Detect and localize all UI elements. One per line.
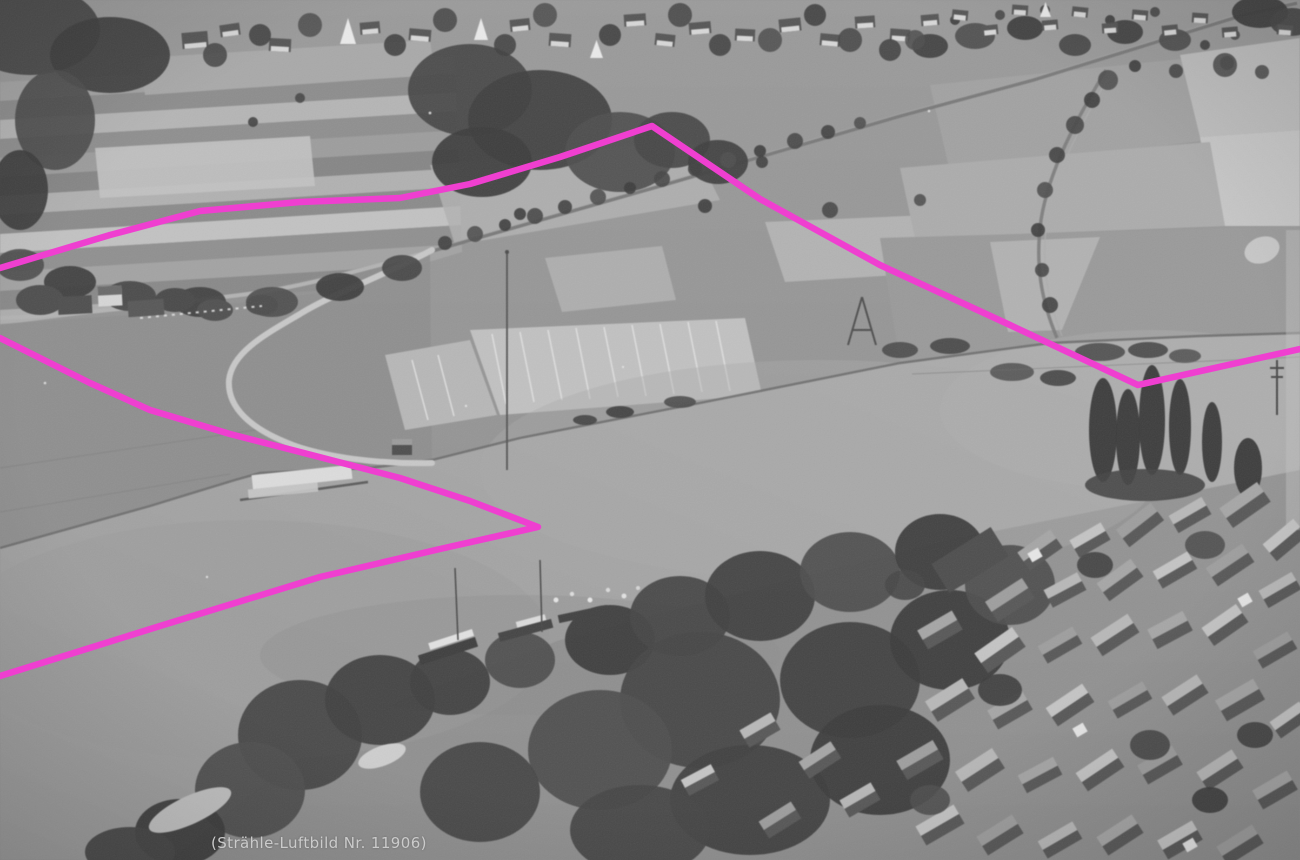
- photo-caption: (Strähle-Luftbild Nr. 11906): [211, 834, 427, 852]
- aerial-photo: (Strähle-Luftbild Nr. 11906): [0, 0, 1300, 860]
- photo-scene: [0, 0, 1300, 860]
